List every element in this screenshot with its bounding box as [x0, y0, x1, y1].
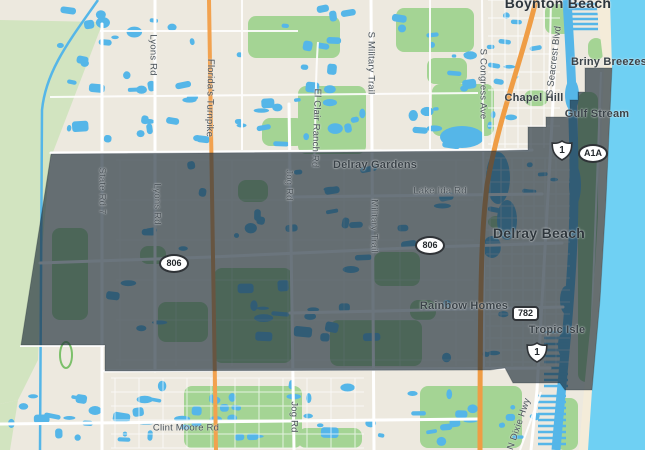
map-viewport[interactable]: Boynton BeachDelray BeachBriny BreezesGu… — [0, 0, 645, 450]
map-canvas[interactable] — [0, 0, 645, 450]
